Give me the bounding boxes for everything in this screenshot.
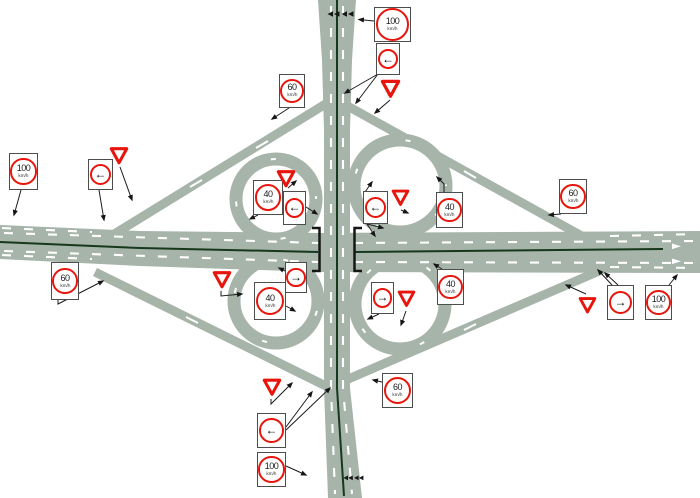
left-arrow-icon: ← — [382, 53, 394, 65]
sign-arrow-se-quadrant: → — [371, 282, 394, 314]
sign-arrow-center-right: ← — [363, 191, 388, 224]
sign-give-way-sw-loop — [212, 269, 232, 291]
roads-and-leaders-layer — [0, 0, 700, 498]
sign-give-way-bottom — [262, 376, 282, 399]
sign-speed-60-bottom: 60 km/h — [382, 373, 413, 408]
speed-value: 40 — [263, 190, 272, 199]
arrow-circle-icon: ← — [378, 49, 399, 70]
speed-value: 60 — [568, 189, 577, 198]
speed-unit: km/h — [19, 174, 29, 179]
speed-value: 60 — [393, 383, 402, 392]
sign-speed-60-upper-left: 60 km/h — [279, 74, 305, 108]
arrow-circle-icon: ← — [90, 164, 111, 185]
give-way-triangle-icon — [397, 287, 416, 311]
sign-speed-100-top: 100 km/h — [374, 7, 411, 42]
give-way-triangle-icon — [380, 78, 401, 100]
sign-arrow-nw-quadrant: ← — [283, 191, 306, 225]
sign-arrow-bottom: ← — [257, 413, 286, 448]
give-way-triangle-icon — [578, 294, 597, 317]
speed-value: 40 — [445, 203, 454, 212]
right-arrow-icon: → — [615, 296, 627, 308]
vertical-motorway — [312, 0, 363, 498]
sign-arrow-left-top: ← — [376, 43, 400, 75]
sign-speed-60-upper-right: 60 km/h — [559, 179, 587, 214]
interchange-diagram: 100 km/h ← 60 km/h 100 km/h ← 60 km/h — [0, 0, 700, 498]
sign-give-way-center-right — [391, 186, 410, 210]
arrow-circle-icon: → — [373, 288, 393, 308]
speed-unit: km/h — [568, 199, 578, 204]
sign-give-way-left — [109, 145, 129, 167]
sign-give-way-right — [578, 294, 597, 317]
give-way-triangle-icon — [212, 269, 232, 291]
sign-speed-100-left: 100 km/h — [9, 153, 38, 190]
speed-unit: km/h — [267, 472, 277, 477]
left-arrow-icon: ← — [265, 424, 277, 436]
right-arrow-icon: → — [290, 271, 302, 283]
speed-limit-circle-icon: 40 km/h — [438, 275, 463, 300]
sign-speed-40-se-loop: 40 km/h — [437, 269, 464, 305]
give-way-triangle-icon — [262, 376, 282, 399]
speed-limit-circle-icon: 60 km/h — [384, 377, 412, 405]
speed-limit-circle-icon: 100 km/h — [376, 8, 409, 41]
give-way-triangle-icon — [109, 145, 129, 167]
right-arrow-icon: → — [376, 291, 388, 303]
speed-limit-circle-icon: 40 km/h — [437, 198, 462, 223]
speed-value: 60 — [287, 83, 296, 92]
speed-value: 100 — [17, 164, 31, 173]
sign-arrow-right-side: → — [607, 285, 634, 320]
speed-value: 100 — [265, 462, 279, 471]
speed-limit-circle-icon: 40 km/h — [256, 287, 285, 316]
speed-unit: km/h — [446, 290, 456, 295]
sign-arrow-sw-quadrant: → — [285, 262, 307, 293]
speed-unit: km/h — [263, 200, 273, 205]
left-arrow-icon: ← — [95, 168, 107, 180]
speed-value: 40 — [265, 294, 274, 303]
speed-unit: km/h — [60, 284, 70, 289]
left-arrow-icon: ← — [288, 201, 300, 213]
speed-value: 60 — [60, 274, 69, 283]
speed-unit: km/h — [654, 305, 664, 310]
sign-speed-40-sw-loop: 40 km/h — [254, 282, 286, 320]
sign-give-way-top — [380, 78, 401, 100]
speed-limit-circle-icon: 100 km/h — [646, 290, 671, 315]
sign-give-way-se-loop — [397, 287, 416, 311]
arrow-circle-icon: → — [609, 291, 632, 314]
give-way-triangle-icon — [276, 168, 296, 190]
speed-limit-circle-icon: 60 km/h — [280, 79, 304, 103]
speed-value: 100 — [652, 295, 666, 304]
sign-speed-60-lower-left: 60 km/h — [51, 262, 79, 300]
speed-unit: km/h — [265, 304, 275, 309]
arrow-circle-icon: ← — [285, 198, 305, 218]
speed-limit-circle-icon: 60 km/h — [560, 184, 585, 209]
sign-speed-40-ne-loop: 40 km/h — [436, 192, 463, 228]
sign-give-way-nw-loop — [276, 168, 296, 190]
speed-limit-circle-icon: 100 km/h — [258, 456, 284, 482]
speed-value: 40 — [446, 280, 455, 289]
sign-speed-100-bottom: 100 km/h — [257, 452, 286, 487]
speed-value: 100 — [386, 17, 400, 26]
speed-unit: km/h — [445, 213, 455, 218]
arrow-circle-icon: → — [286, 268, 305, 287]
speed-unit: km/h — [287, 94, 297, 99]
arrow-circle-icon: ← — [365, 197, 386, 218]
sign-speed-100-right: 100 km/h — [645, 285, 672, 320]
speed-limit-circle-icon: 60 km/h — [52, 268, 77, 293]
left-arrow-icon: ← — [370, 201, 382, 213]
give-way-triangle-icon — [391, 186, 410, 210]
speed-unit: km/h — [392, 393, 402, 398]
arrow-circle-icon: ← — [259, 418, 284, 443]
speed-unit: km/h — [388, 27, 398, 32]
speed-limit-circle-icon: 100 km/h — [10, 158, 36, 184]
